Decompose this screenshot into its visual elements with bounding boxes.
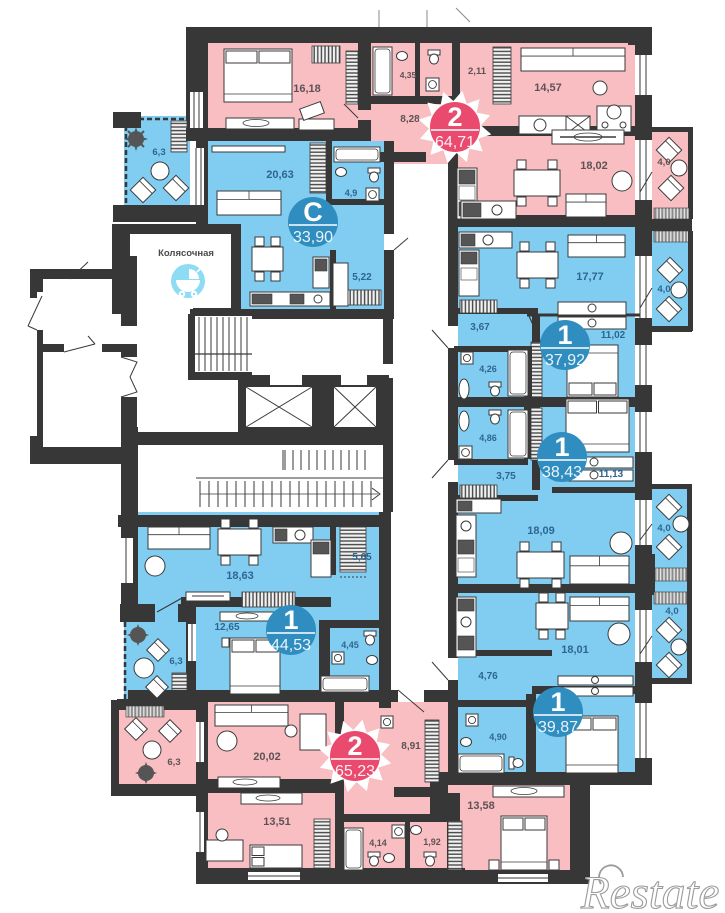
svg-text:4,0: 4,0 [665,606,678,617]
svg-text:1: 1 [554,432,569,462]
svg-text:11,02: 11,02 [601,330,626,341]
svg-text:4,35: 4,35 [400,70,417,80]
svg-text:1,92: 1,92 [423,837,441,847]
svg-text:2: 2 [447,102,462,132]
svg-text:4,0: 4,0 [657,157,670,168]
svg-text:2: 2 [347,731,362,761]
svg-text:1: 1 [557,320,572,350]
svg-text:6,3: 6,3 [167,757,180,768]
svg-text:6,3: 6,3 [152,147,165,158]
svg-text:4,86: 4,86 [479,433,497,443]
svg-text:4,90: 4,90 [489,732,507,742]
svg-text:20,63: 20,63 [266,169,294,181]
svg-text:18,02: 18,02 [580,160,608,172]
svg-text:13,58: 13,58 [467,800,495,812]
svg-text:6,3: 6,3 [169,656,182,667]
svg-text:64,71: 64,71 [435,134,475,151]
svg-text:17,77: 17,77 [576,271,604,283]
svg-text:2,11: 2,11 [468,66,487,77]
svg-text:4,26: 4,26 [479,364,497,374]
svg-text:12,65: 12,65 [214,622,239,633]
svg-text:1: 1 [550,687,565,717]
svg-text:4,14: 4,14 [369,838,387,848]
svg-text:38,43: 38,43 [542,464,582,481]
svg-text:4,76: 4,76 [478,671,498,682]
svg-text:Колясочная: Колясочная [158,248,214,259]
svg-text:44,53: 44,53 [271,637,311,654]
svg-text:5,22: 5,22 [352,272,372,283]
svg-text:8,28: 8,28 [400,114,420,125]
svg-text:65,23: 65,23 [335,763,375,780]
svg-text:1: 1 [283,605,298,635]
svg-text:Restate: Restate [580,867,719,913]
svg-text:33,90: 33,90 [293,229,333,246]
svg-text:20,02: 20,02 [253,751,281,763]
svg-text:C: C [303,197,323,227]
svg-text:8,91: 8,91 [401,741,421,752]
svg-text:4,45: 4,45 [341,640,359,650]
svg-text:18,09: 18,09 [527,525,555,537]
svg-text:37,92: 37,92 [545,352,585,369]
svg-text:5,65: 5,65 [352,552,372,563]
svg-text:39,87: 39,87 [538,719,578,736]
svg-text:18,63: 18,63 [226,570,254,582]
svg-text:14,57: 14,57 [534,82,562,94]
svg-text:13,51: 13,51 [263,816,291,828]
svg-text:16,18: 16,18 [293,83,321,95]
svg-text:3,67: 3,67 [470,322,490,333]
svg-text:11,13: 11,13 [599,469,624,480]
svg-text:4,0: 4,0 [657,523,670,534]
svg-text:18,01: 18,01 [561,644,589,656]
svg-text:4,0: 4,0 [657,284,670,295]
svg-text:3,75: 3,75 [496,471,516,482]
svg-text:4,9: 4,9 [345,188,358,198]
